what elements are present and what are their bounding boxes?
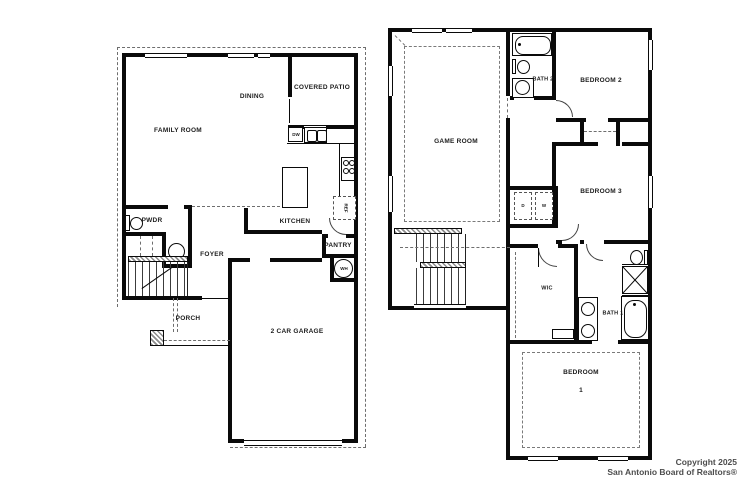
bath1-partition	[622, 264, 650, 265]
counter-edge	[287, 143, 358, 144]
closet-wall	[552, 142, 598, 146]
label-bath-1: BATH 1	[603, 311, 624, 317]
wall-segment	[648, 28, 652, 460]
sink-icon	[581, 324, 595, 338]
label-garage: 2 CAR GARAGE	[271, 329, 324, 336]
bath2-wall	[552, 32, 556, 100]
pwdr-wall	[122, 232, 166, 236]
label-washer: W	[542, 204, 546, 209]
window	[388, 176, 393, 212]
bathtub-icon	[512, 33, 552, 56]
window	[446, 28, 472, 33]
wic-cabinet	[552, 329, 574, 339]
laundry-wall	[510, 224, 558, 228]
closet-wall	[580, 118, 584, 146]
closet-wall	[616, 118, 620, 146]
gameroom-wall	[506, 118, 510, 228]
window	[648, 40, 653, 70]
stair-treads	[416, 234, 466, 262]
pwdr-wall	[188, 205, 192, 268]
label-bedroom-2: BEDROOM 2	[580, 78, 622, 85]
garage-wall	[232, 439, 244, 443]
label-kitchen: KITCHEN	[280, 219, 311, 226]
first-floor-plan: WH DW REF FAMILY ROOM DINING C	[0, 0, 380, 480]
door-arc	[329, 218, 346, 235]
window	[528, 456, 558, 461]
porch-beam-dashed	[173, 298, 174, 332]
patio-wall	[288, 57, 292, 97]
sink-icon	[581, 302, 595, 316]
label-bedroom-1-line2: 1	[579, 388, 583, 395]
window	[228, 53, 254, 58]
stair-upper-dashed	[152, 236, 153, 256]
shower-icon	[622, 266, 648, 294]
label-bath-2: BATH 2	[533, 77, 554, 83]
wall-segment	[122, 296, 202, 300]
tray-ceiling-dashed	[404, 46, 500, 222]
range-icon	[341, 157, 355, 181]
toilet-tank-icon	[644, 250, 648, 265]
garage-wall	[232, 258, 250, 262]
closet-wall	[608, 118, 652, 122]
stair-treads	[128, 262, 188, 296]
gameroom-wall	[506, 32, 510, 96]
kitchen-island	[282, 167, 308, 208]
label-wic: WIC	[541, 286, 552, 292]
roofline-dashed	[365, 47, 366, 447]
window	[414, 304, 466, 309]
cased-opening-dashed	[192, 206, 280, 207]
toilet-icon	[630, 250, 643, 265]
copyright-line2: San Antonio Board of Realtors®	[607, 468, 737, 478]
pantry-wall	[322, 234, 328, 238]
pwdr-wall	[122, 205, 168, 209]
bath2-wall	[534, 96, 556, 100]
wic-shelf-dashed	[515, 252, 516, 338]
door-leaf	[538, 248, 539, 267]
wh-closet-wall	[330, 278, 358, 282]
wic-wall	[510, 244, 538, 248]
closet-wall	[622, 142, 652, 146]
stair-treads	[416, 268, 466, 304]
roofline-dashed	[230, 447, 366, 448]
laundry-wall	[554, 186, 558, 228]
bedroom3-wall	[580, 240, 584, 244]
pantry-wall	[346, 234, 358, 238]
floor-plan-image: WH DW REF FAMILY ROOM DINING C	[0, 0, 740, 480]
window	[648, 176, 653, 208]
opening-dashed	[507, 98, 508, 118]
toilet-icon	[517, 60, 530, 74]
porch-edge-dashed	[164, 340, 230, 341]
wall-segment	[122, 53, 126, 300]
bathtub-icon	[621, 296, 649, 340]
bedroom1-wall	[618, 340, 652, 344]
garage-door-line	[244, 445, 342, 446]
laundry-wall	[510, 186, 558, 190]
label-game-room: GAME ROOM	[434, 139, 478, 146]
label-water-heater: WH	[340, 267, 348, 272]
pantry-wall	[322, 254, 358, 258]
label-foyer: FOYER	[200, 252, 224, 259]
label-family-room: FAMILY ROOM	[154, 128, 202, 135]
roofline-dashed	[400, 247, 510, 248]
garage-wall	[342, 439, 354, 443]
wall-segment	[506, 228, 510, 460]
bedroom3-wall	[604, 240, 652, 244]
counter-edge	[339, 144, 340, 196]
bedroom1-wall	[510, 340, 592, 344]
window	[145, 53, 187, 58]
roofline-dashed	[117, 47, 118, 307]
garage-left-wall	[228, 258, 232, 443]
label-pantry: PANTRY	[324, 243, 352, 250]
label-covered-patio: COVERED PATIO	[294, 85, 350, 92]
label-porch: PORCH	[176, 316, 201, 323]
patio-wall	[326, 125, 358, 129]
garage-door-line	[244, 440, 342, 441]
kitchen-wall	[248, 230, 322, 234]
label-refrigerator: REF	[343, 204, 348, 213]
label-dining: DINING	[240, 94, 264, 101]
toilet-tank-icon	[512, 59, 516, 74]
label-dryer: D	[521, 204, 524, 209]
stair-upper-dashed	[140, 236, 141, 256]
label-bedroom-3: BEDROOM 3	[580, 189, 622, 196]
label-pwdr: PWDR	[142, 218, 163, 225]
label-dishwasher: DW	[292, 133, 300, 138]
patio-door-line	[289, 99, 290, 123]
label-bedroom-1-line1: BEDROOM	[563, 370, 599, 377]
window	[412, 28, 442, 33]
kitchen-sink-icon	[304, 127, 327, 143]
sink-icon	[515, 80, 530, 95]
window	[258, 53, 270, 58]
front-door-threshold	[202, 298, 228, 299]
copyright-notice: Copyright 2025 San Antonio Board of Real…	[607, 458, 737, 478]
roofline-dashed	[117, 47, 366, 48]
porch-post	[150, 330, 164, 346]
porch-edge	[150, 345, 232, 346]
window	[388, 66, 393, 96]
wall-segment	[354, 53, 358, 443]
garage-wall	[270, 258, 322, 262]
tray-ceiling-dashed	[522, 352, 640, 448]
closet-rod-dashed	[584, 131, 616, 132]
